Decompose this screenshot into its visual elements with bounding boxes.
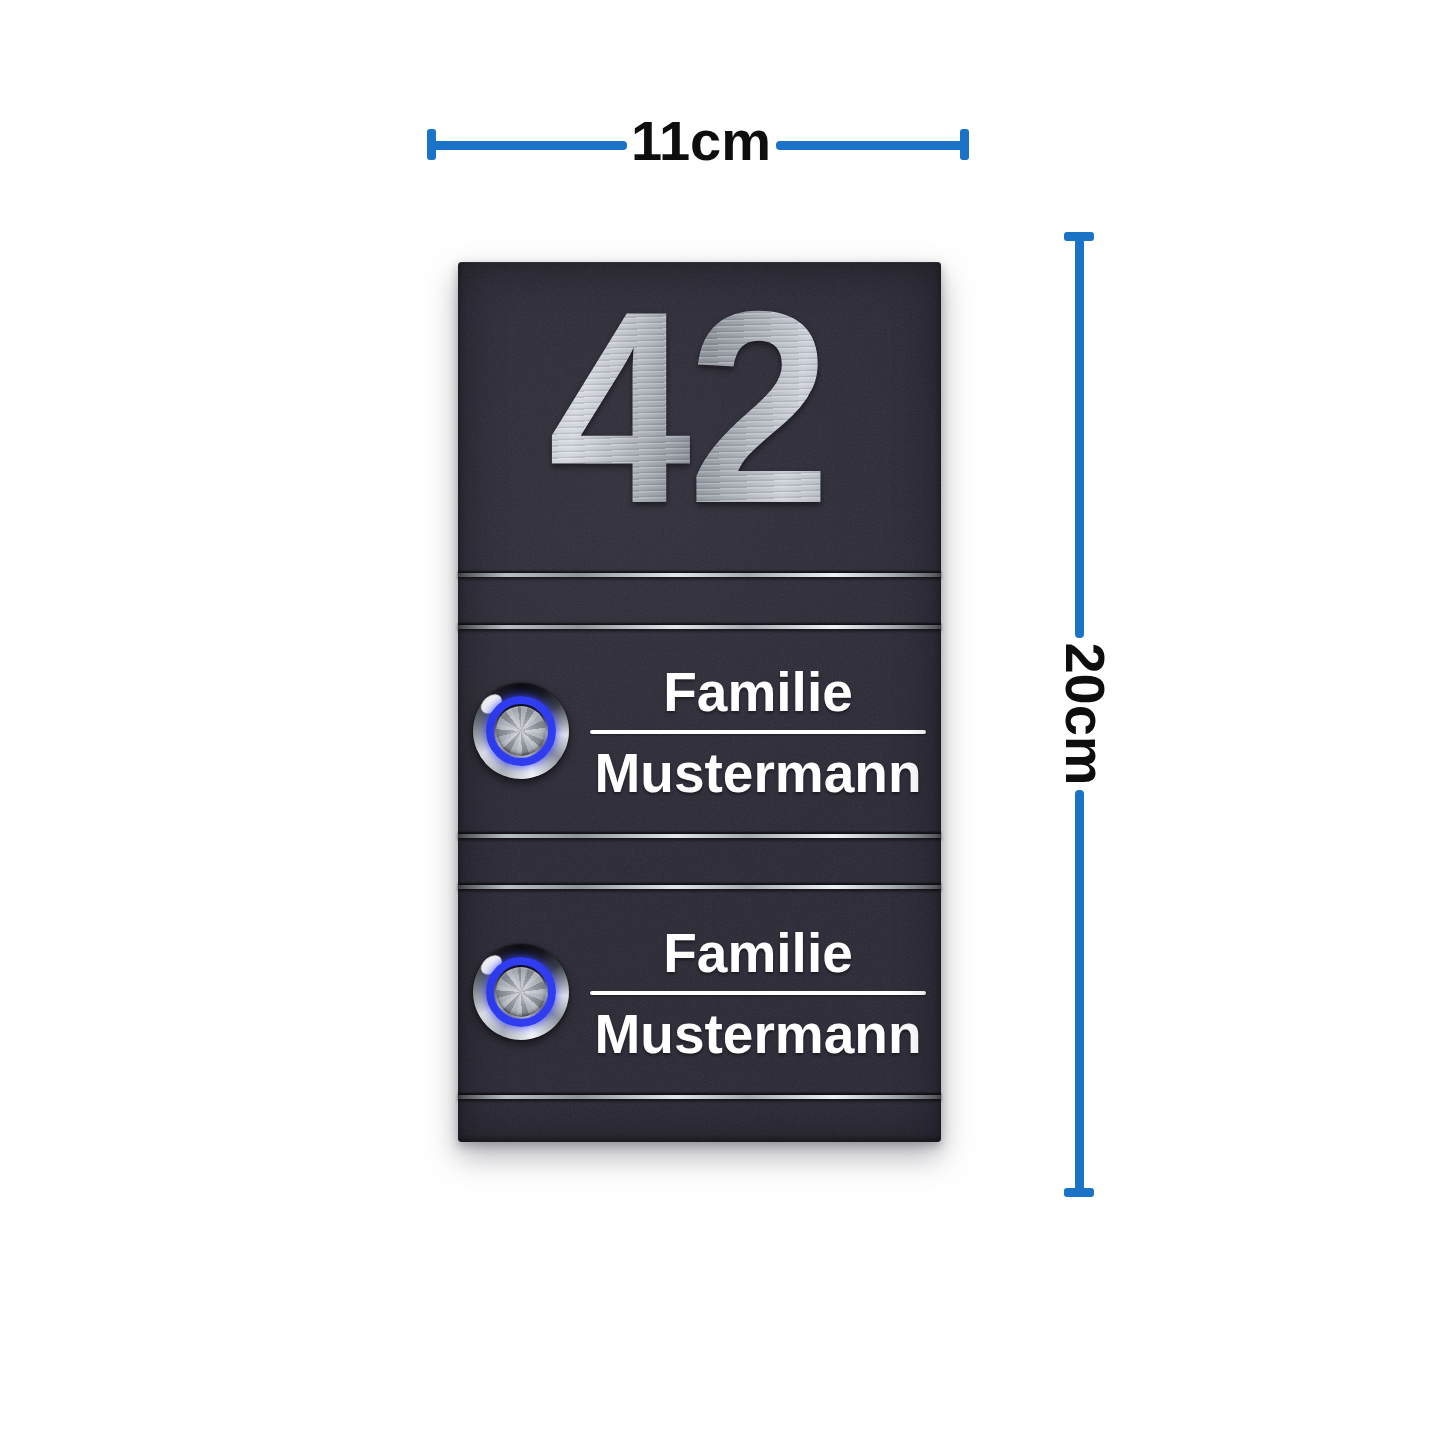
dimension-line-segment [431,141,627,150]
groove-line [458,625,941,629]
doorbell-button-1-icon [473,683,569,779]
name-divider [590,730,926,734]
button-steel-cap-icon [496,706,546,756]
groove-line [458,1095,941,1099]
groove-line [458,885,941,889]
nameplate-2: Familie Mustermann [590,894,926,1094]
house-number: 42 [460,270,914,544]
dimension-line-segment [776,141,965,150]
nameplate-1: Familie Mustermann [590,633,926,833]
name-divider [590,991,926,995]
doorbell-unit-1: Familie Mustermann [458,633,941,833]
button-steel-cap-icon [496,967,546,1017]
product-image: 11cm 20cm 42 [0,0,1445,1445]
resident-name-line2: Mustermann [590,1006,926,1062]
dimension-endcap-bottom-icon [1064,1188,1094,1197]
dimension-endcap-right-icon [960,129,969,160]
dimension-line-segment [1075,238,1084,638]
groove-line [458,573,941,577]
width-label: 11cm [626,113,776,169]
resident-name-line1: Familie [590,925,926,981]
resident-name-line2: Mustermann [590,745,926,801]
resident-name-line1: Familie [590,664,926,720]
doorbell-button-2-icon [473,944,569,1040]
height-label: 20cm [1057,642,1113,785]
groove-line [458,834,941,838]
dimension-line-segment [1075,790,1084,1192]
doorbell-unit-2: Familie Mustermann [458,894,941,1094]
doorbell-plate: 42 Familie Mustermann [458,262,941,1142]
